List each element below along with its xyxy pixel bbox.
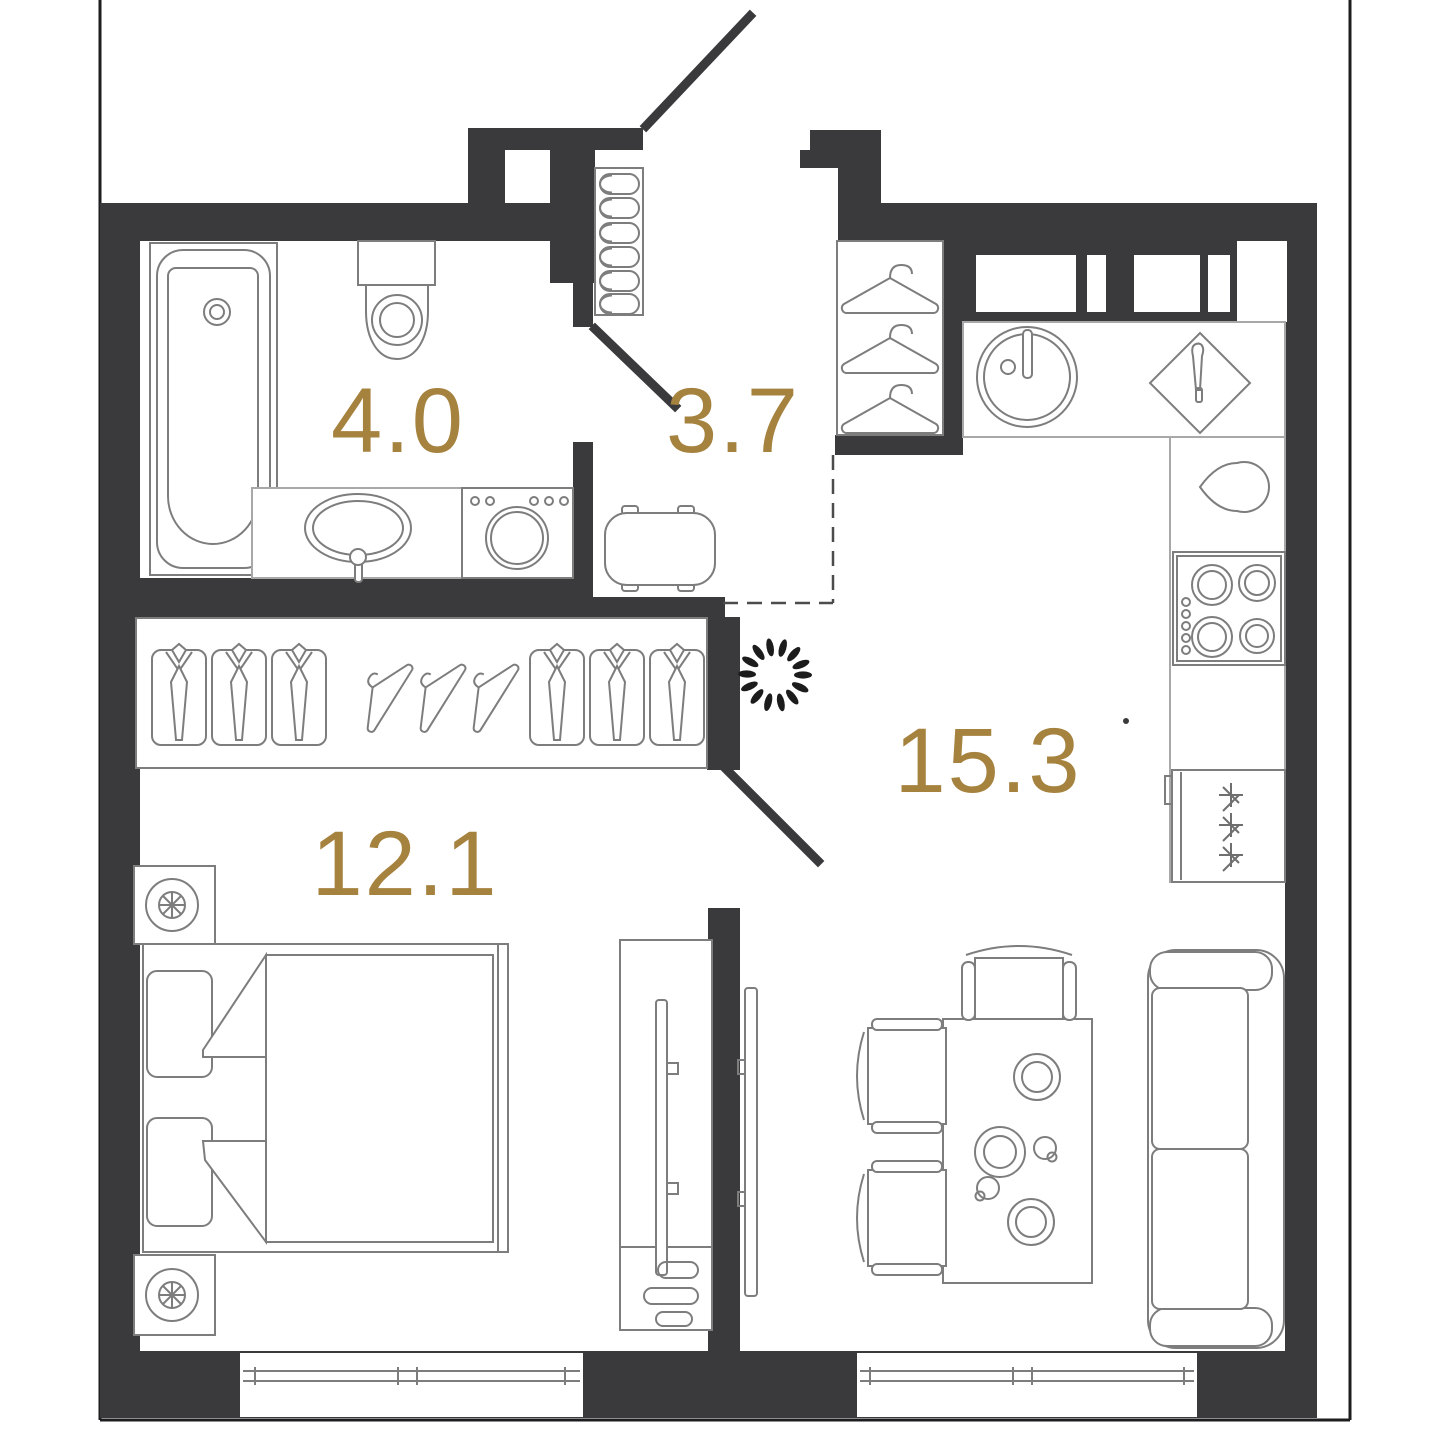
- shoe-cabinet: [595, 168, 643, 315]
- shirt-icon: [152, 644, 206, 745]
- kitchen-sink: [977, 327, 1077, 427]
- dining-chair-left-2: [857, 1161, 946, 1275]
- tv-panel-living: [738, 988, 757, 1296]
- shirt-icon: [590, 644, 644, 745]
- dining-chair-top: [962, 946, 1076, 1020]
- bathroom-area-label: 4.0: [331, 370, 465, 472]
- nightstand-top: [134, 866, 215, 944]
- bedroom-door: [726, 769, 818, 861]
- double-bed: [143, 944, 508, 1252]
- shirt-icon: [650, 644, 704, 745]
- shirt-icon: [530, 644, 584, 745]
- pillow: [147, 971, 212, 1077]
- pillow: [147, 1118, 212, 1226]
- zone-boundary: [723, 455, 833, 603]
- shirt-icon: [212, 644, 266, 745]
- kitchen-living: 15.3: [738, 322, 1285, 1348]
- nightstand-bottom: [134, 1255, 215, 1335]
- toilet: [358, 241, 435, 359]
- vanity-sink: [252, 488, 462, 582]
- bedroom: 12.1: [134, 618, 712, 1335]
- dining-table: [943, 1019, 1092, 1283]
- decorative-wreath: [738, 638, 812, 712]
- bedroom-window: [240, 1353, 583, 1417]
- sofa: [1148, 950, 1284, 1348]
- entry-wardrobe: [837, 241, 943, 435]
- dining-chair-left-1: [857, 1019, 946, 1133]
- kitchen-living-area-label: 15.3: [894, 710, 1081, 812]
- entrance-door: [646, 16, 750, 126]
- stove: [1173, 552, 1285, 665]
- ottoman-bench: [605, 506, 715, 591]
- floor-plan: 4.0: [0, 0, 1449, 1449]
- floor-plan-svg: 4.0: [0, 0, 1449, 1449]
- tv-screen-bedroom: [656, 1000, 667, 1275]
- fridge: [1165, 770, 1285, 882]
- bedroom-area-label: 12.1: [311, 813, 498, 915]
- living-window: [857, 1353, 1197, 1417]
- bathroom: 4.0: [150, 241, 573, 582]
- closet: [136, 618, 707, 768]
- bathroom-door: [595, 329, 675, 406]
- kitchen-dot: [1123, 718, 1129, 724]
- tv-stand: [620, 940, 712, 1330]
- shirt-icon: [272, 644, 326, 745]
- washing-machine: [462, 488, 573, 578]
- hallway-area-label: 3.7: [666, 370, 800, 472]
